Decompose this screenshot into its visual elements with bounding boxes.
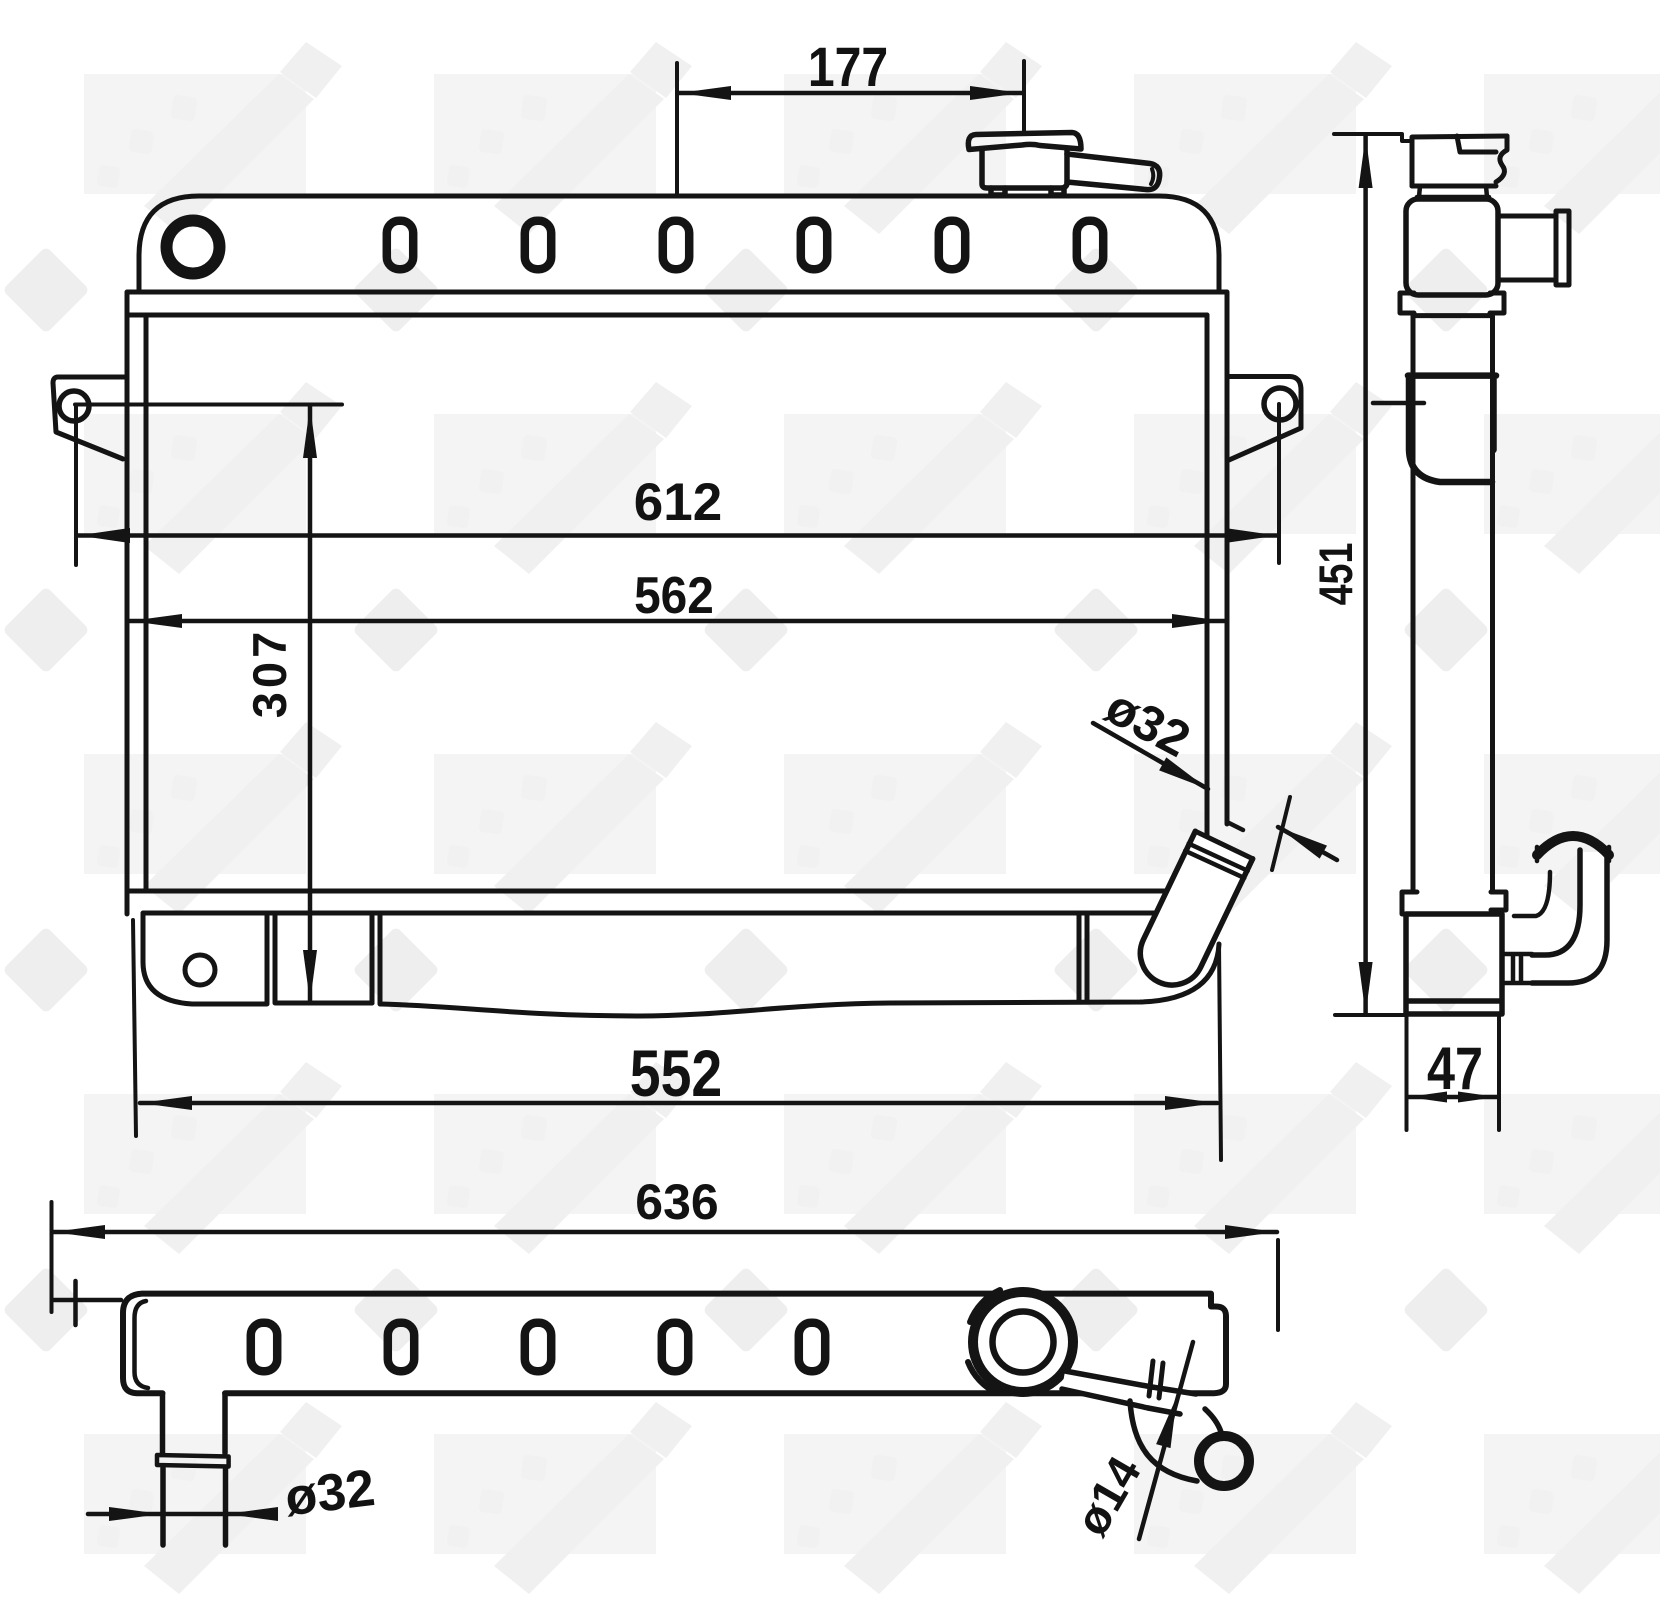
svg-text:ø32: ø32: [282, 1459, 378, 1527]
svg-text:177: 177: [808, 37, 888, 99]
svg-text:47: 47: [1427, 1035, 1483, 1102]
svg-text:636: 636: [635, 1174, 718, 1230]
svg-text:307: 307: [243, 628, 296, 718]
svg-text:562: 562: [634, 566, 714, 624]
svg-text:552: 552: [630, 1036, 722, 1110]
svg-text:451: 451: [1310, 543, 1363, 606]
svg-text:612: 612: [634, 473, 722, 532]
